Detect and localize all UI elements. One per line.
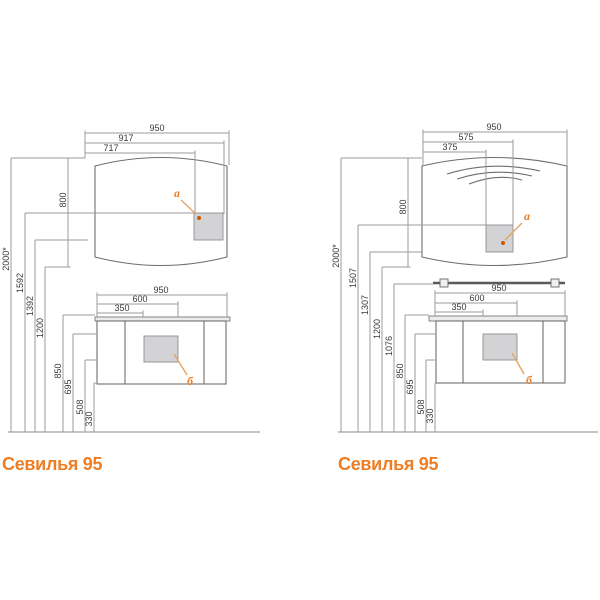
cabinet-siphon-zone-b [144,336,178,362]
dim-total-height: 2000* [1,247,11,271]
callout-b-label: б [526,373,533,387]
dim-height-1200: 1200 [372,319,382,339]
dim-mirror-width-917: 917 [118,133,133,143]
dim-total-height: 2000* [331,244,341,268]
dim-height-695: 695 [63,379,73,394]
dim-cabinet-width-full: 950 [491,283,506,293]
dim-height-1507: 1507 [348,268,358,288]
dim-height-1200: 1200 [35,318,45,338]
dim-height-1076-shelf: 1076 [384,336,394,356]
dim-cabinet-width-600: 600 [132,294,147,304]
dim-height-850: 850 [395,363,405,378]
cabinet-siphon-zone-b [483,334,517,360]
callout-b-label: б [187,374,194,388]
countertop [95,317,230,321]
left-drawing: 950 917 717 800 2000* 1592 1392 1200 950… [1,123,260,474]
dim-mirror-width-575: 575 [458,132,473,142]
dim-mirror-width-full: 950 [486,122,501,132]
dim-cabinet-width-350: 350 [451,302,466,312]
product-title-left: Севилья 95 [2,454,102,474]
dim-cabinet-width-full: 950 [153,285,168,295]
dimension-drawing-page: 950 917 717 800 2000* 1592 1392 1200 950… [0,0,600,600]
dim-height-330: 330 [425,408,435,423]
dim-height-1592: 1592 [15,273,25,293]
countertop [429,316,567,321]
dim-mirror-height: 800 [58,192,68,207]
callout-a-label: a [524,209,530,223]
product-title-right: Севилья 95 [338,454,438,474]
dim-cabinet-width-350: 350 [114,303,129,313]
dim-mirror-width-full: 950 [149,123,164,133]
dim-height-850: 850 [53,363,63,378]
shelf-bracket-right [551,279,559,287]
dim-cabinet-width-600: 600 [469,293,484,303]
mirror-outline [95,158,227,266]
dim-height-1392: 1392 [25,296,35,316]
dim-height-1307: 1307 [360,295,370,315]
dim-mirror-width-717: 717 [103,143,118,153]
shelf-bracket-left [440,279,448,287]
dim-height-330: 330 [84,411,94,426]
right-drawing: 950 575 375 800 2000* 1507 1307 1200 107… [331,122,598,474]
callout-a-dot [501,241,505,245]
technical-drawing-canvas: 950 917 717 800 2000* 1592 1392 1200 950… [0,0,600,600]
callout-a-dot [197,216,201,220]
dim-mirror-height: 800 [398,199,408,214]
dim-height-695: 695 [405,379,415,394]
callout-a-label: a [174,186,180,200]
mirror-switch-zone-a [486,225,513,252]
dim-mirror-width-375: 375 [442,142,457,152]
